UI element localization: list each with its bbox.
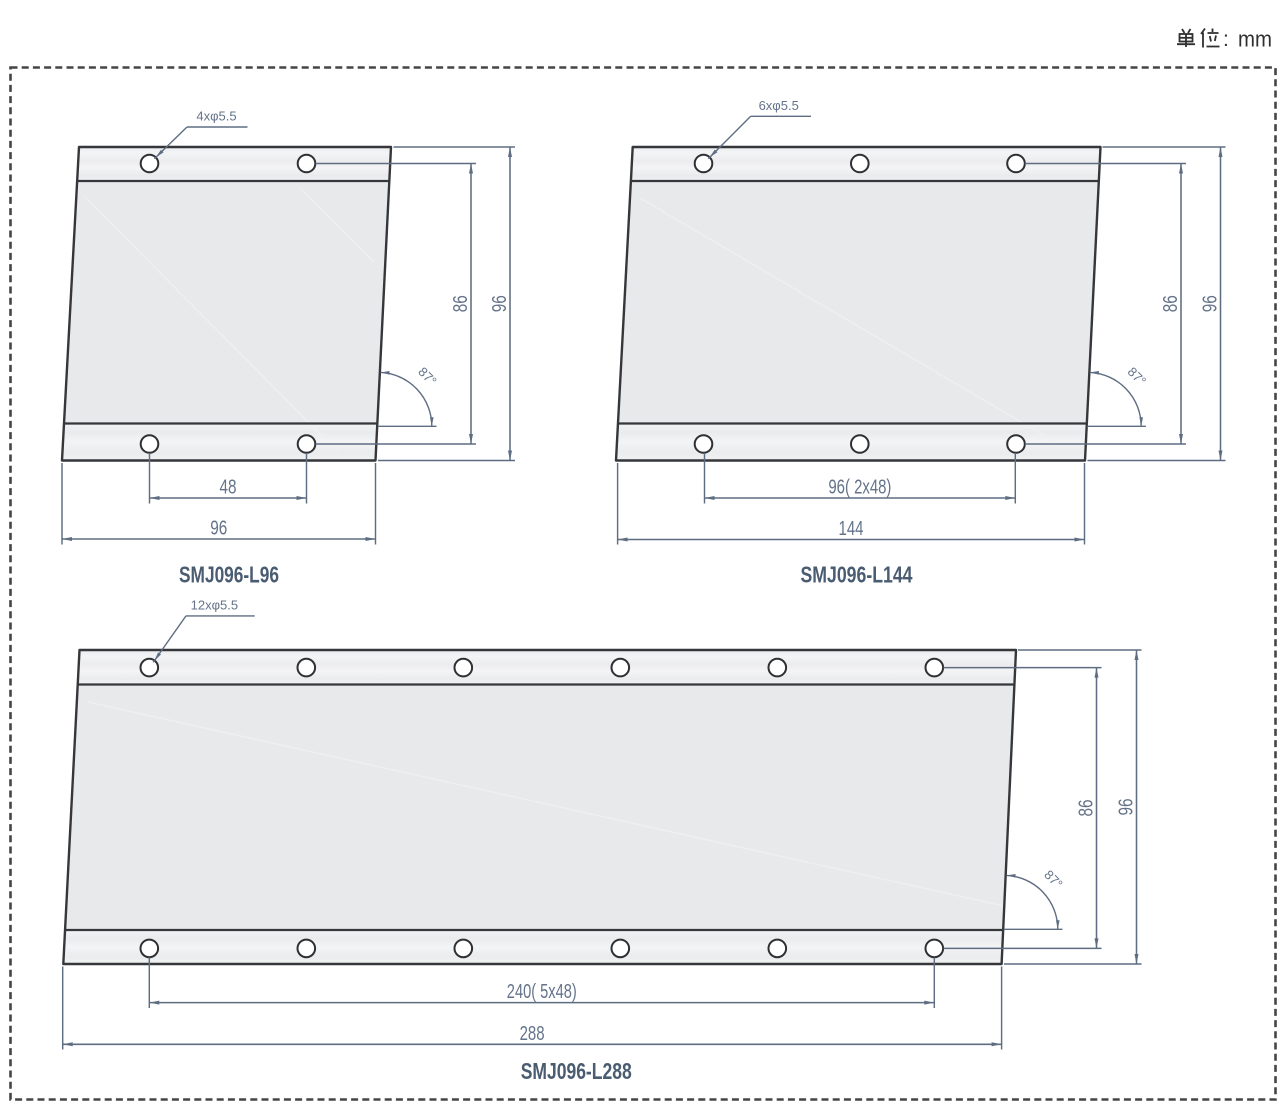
svg-text:96( 2x48): 96( 2x48) [828, 477, 891, 499]
svg-text:240( 5x48): 240( 5x48) [507, 981, 577, 1003]
svg-text::: : [1223, 28, 1229, 51]
svg-text:96: 96 [210, 518, 227, 540]
svg-text:SMJ096-L144: SMJ096-L144 [801, 562, 913, 588]
svg-text:48: 48 [220, 477, 237, 499]
svg-text:86: 86 [1076, 800, 1098, 817]
svg-text:288: 288 [520, 1023, 545, 1045]
svg-text:SMJ096-L96: SMJ096-L96 [179, 562, 279, 588]
svg-text:SMJ096-L288: SMJ096-L288 [521, 1058, 632, 1084]
svg-text:6xφ5.5: 6xφ5.5 [759, 98, 799, 113]
svg-text:86: 86 [1160, 295, 1182, 312]
svg-text:96: 96 [1116, 799, 1138, 816]
svg-text:mm: mm [1238, 27, 1272, 52]
svg-text:96: 96 [1200, 295, 1222, 312]
svg-text:4xφ5.5: 4xφ5.5 [196, 109, 236, 124]
svg-text:144: 144 [839, 518, 864, 540]
svg-text:86: 86 [450, 295, 472, 312]
svg-text:12xφ5.5: 12xφ5.5 [191, 598, 238, 613]
svg-text:96: 96 [489, 295, 511, 312]
